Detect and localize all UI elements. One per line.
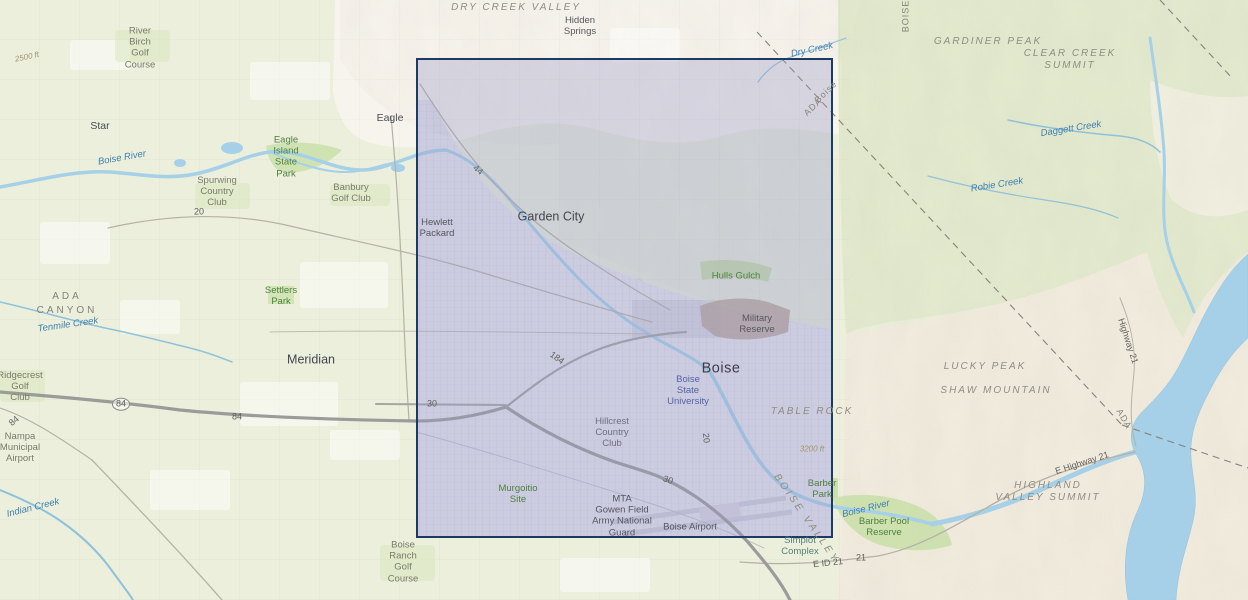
- selection-extent[interactable]: [416, 58, 833, 538]
- map-viewport[interactable]: DRY CREEK VALLEYHidden SpringsGARDINER P…: [0, 0, 1248, 600]
